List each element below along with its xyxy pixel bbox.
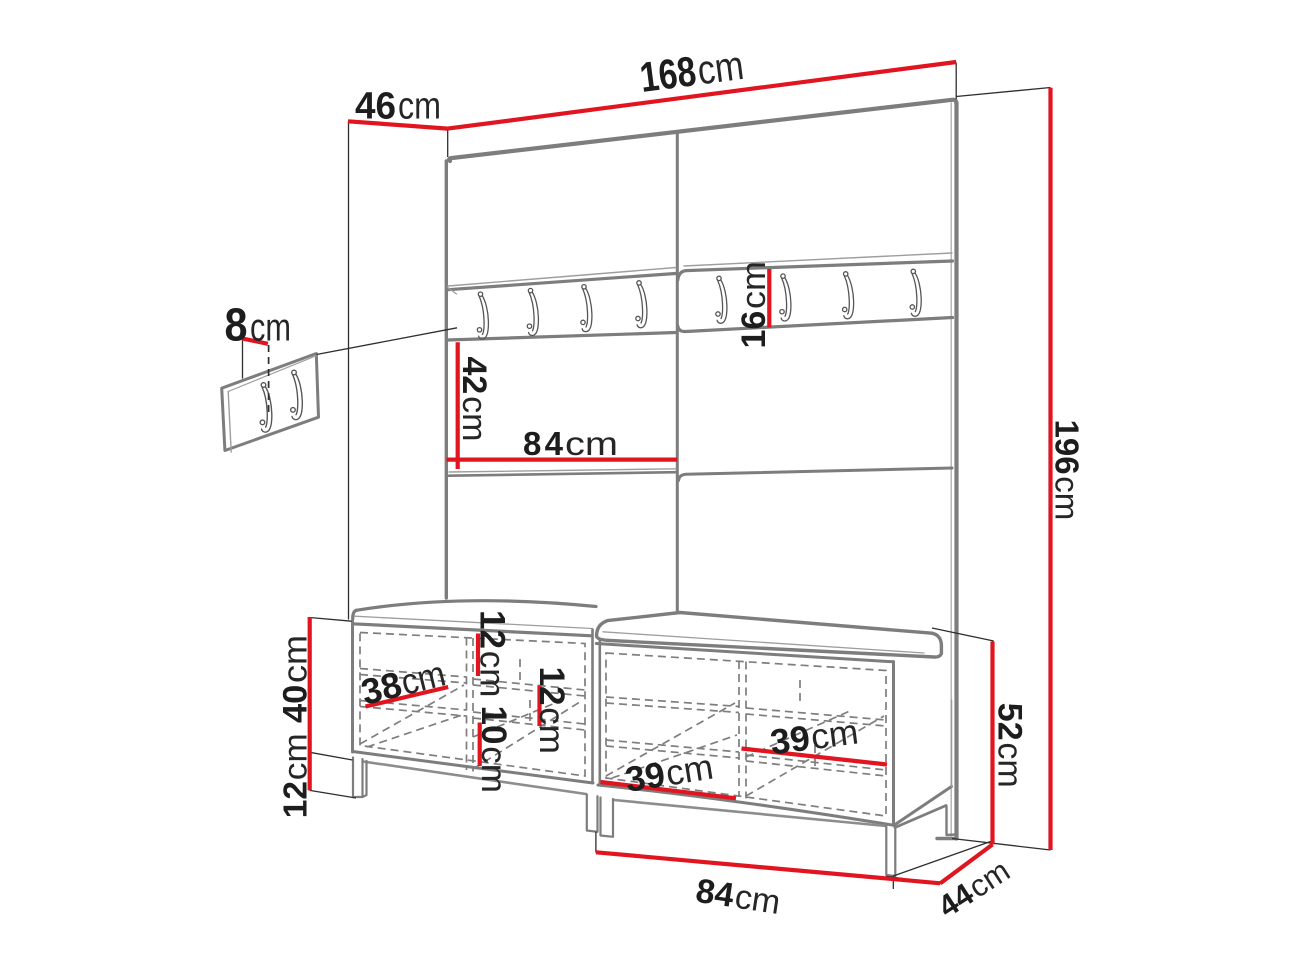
svg-text:cm: cm <box>695 42 747 94</box>
svg-text:84: 84 <box>693 872 736 915</box>
svg-text:cm: cm <box>455 396 493 441</box>
svg-text:12: 12 <box>277 781 314 818</box>
svg-text:16: 16 <box>735 311 773 349</box>
svg-text:42: 42 <box>455 357 493 395</box>
svg-text:cm: cm <box>250 307 291 350</box>
svg-text:12: 12 <box>532 667 571 706</box>
svg-text:cm: cm <box>565 425 618 462</box>
svg-text:cm: cm <box>398 86 441 128</box>
svg-text:8: 8 <box>225 299 248 351</box>
svg-text:39: 39 <box>622 754 667 800</box>
svg-text:cm: cm <box>532 707 571 754</box>
svg-text:52: 52 <box>991 703 1029 741</box>
svg-text:cm: cm <box>991 742 1029 787</box>
svg-text:cm: cm <box>473 651 512 698</box>
svg-text:168: 168 <box>637 47 699 101</box>
svg-text:cm: cm <box>474 746 513 793</box>
svg-text:40: 40 <box>276 685 314 723</box>
svg-text:cm: cm <box>1049 476 1086 520</box>
svg-text:196: 196 <box>1049 420 1086 475</box>
svg-text:cm: cm <box>276 635 314 683</box>
svg-text:cm: cm <box>663 747 716 794</box>
svg-text:12: 12 <box>473 610 512 649</box>
svg-text:cm: cm <box>732 878 782 922</box>
svg-text:46: 46 <box>355 86 396 128</box>
svg-text:39: 39 <box>768 718 812 763</box>
svg-text:cm: cm <box>735 261 773 309</box>
svg-text:cm: cm <box>809 712 861 758</box>
svg-text:cm: cm <box>277 733 314 780</box>
svg-text:10: 10 <box>474 706 513 745</box>
